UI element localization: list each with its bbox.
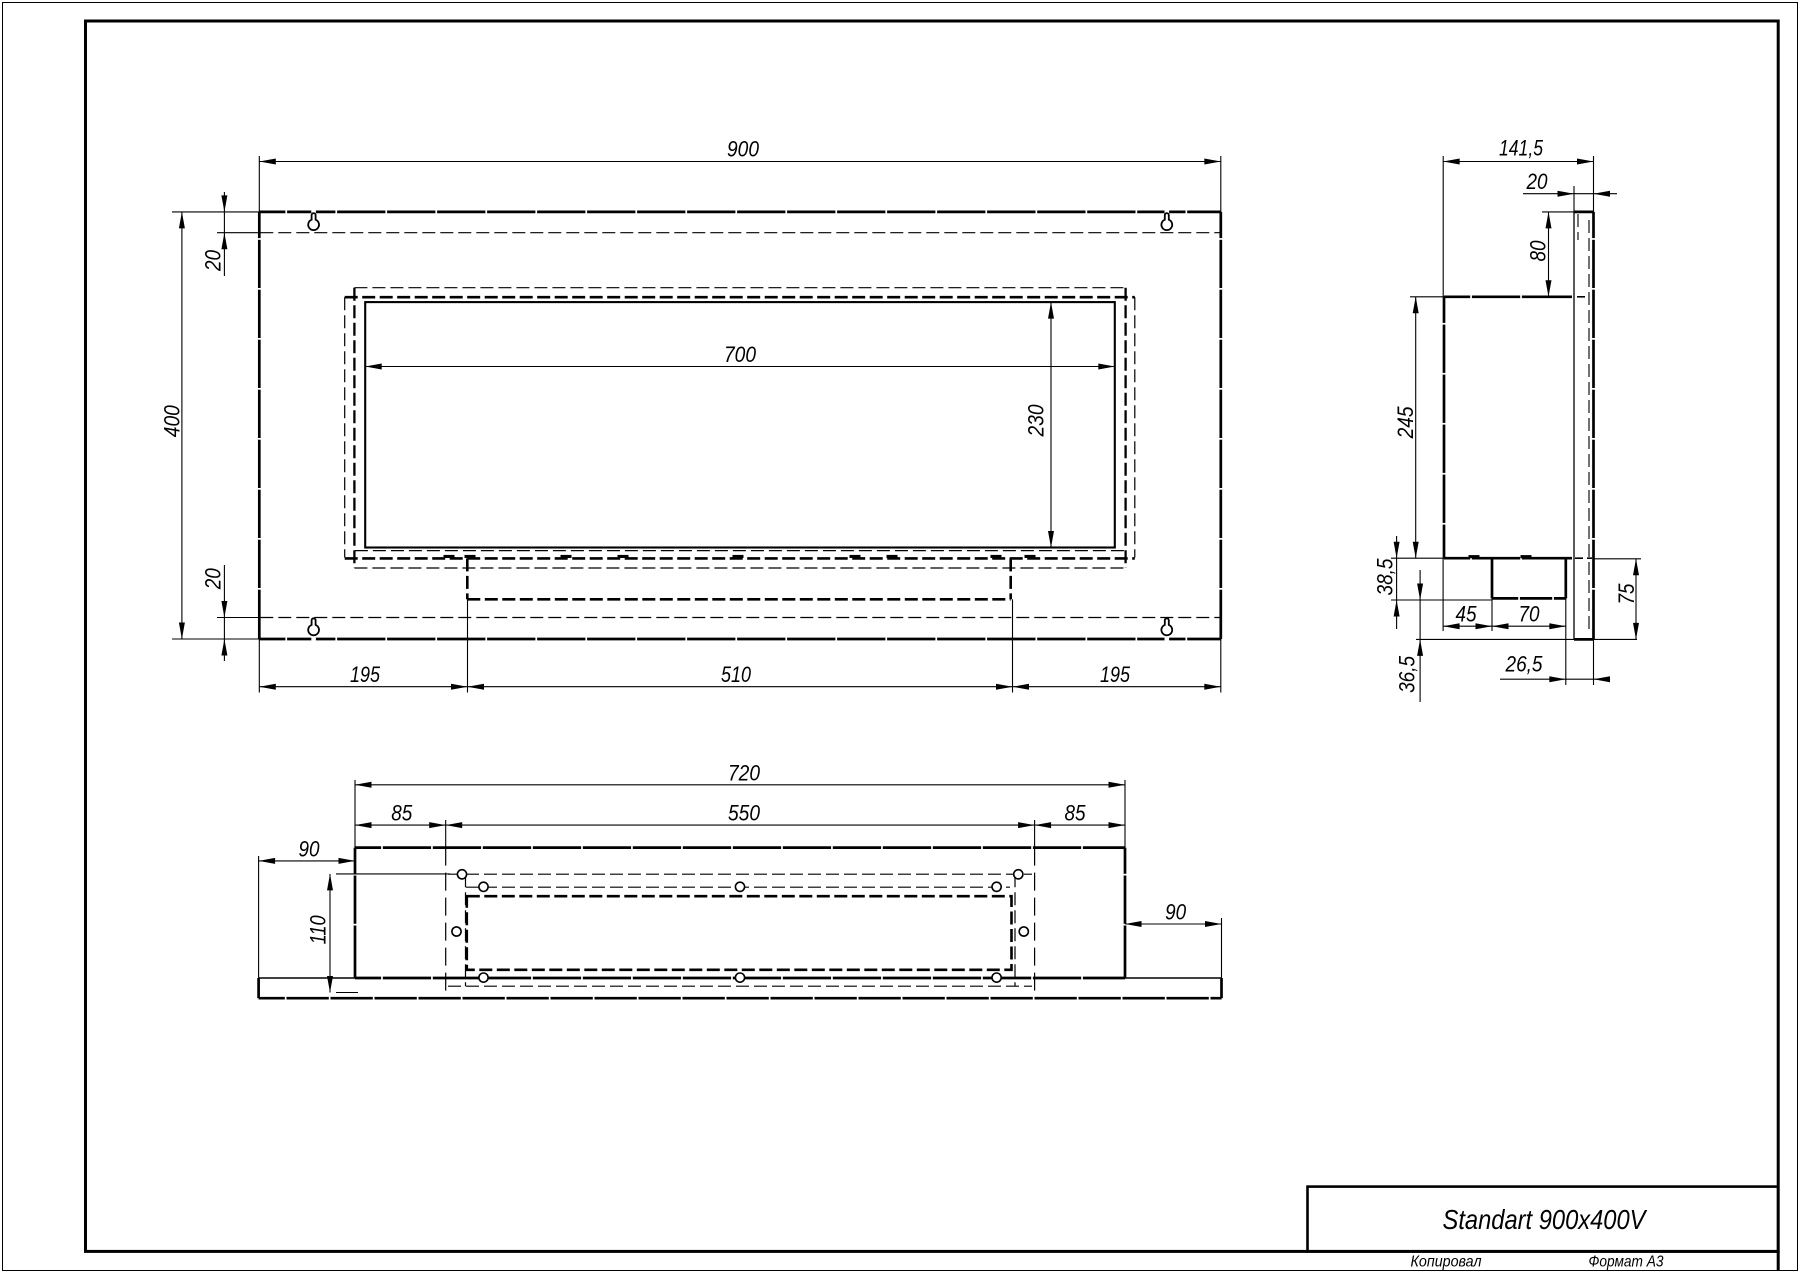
svg-text:Копировал: Копировал [1411,1254,1482,1271]
svg-text:110: 110 [306,915,331,944]
svg-text:80: 80 [1526,240,1551,261]
svg-text:38,5: 38,5 [1373,558,1398,595]
svg-text:90: 90 [1165,900,1186,925]
svg-text:20: 20 [1526,169,1548,194]
svg-text:20: 20 [201,568,226,590]
svg-text:720: 720 [728,760,760,785]
svg-text:85: 85 [1065,801,1086,826]
svg-text:900: 900 [727,137,759,162]
svg-text:36,5: 36,5 [1395,655,1420,692]
svg-text:Формат А3: Формат А3 [1589,1254,1664,1271]
svg-text:195: 195 [1100,662,1130,687]
svg-text:75: 75 [1614,583,1639,604]
svg-text:45: 45 [1456,602,1477,627]
svg-text:70: 70 [1519,602,1540,627]
svg-text:Standart 900x400V: Standart 900x400V [1443,1204,1648,1235]
svg-text:90: 90 [299,836,320,861]
svg-text:400: 400 [160,405,185,437]
svg-text:245: 245 [1393,406,1418,439]
svg-text:141,5: 141,5 [1499,136,1543,161]
svg-text:550: 550 [728,801,760,826]
svg-text:700: 700 [724,342,756,367]
svg-text:195: 195 [350,662,380,687]
svg-text:510: 510 [721,662,751,687]
svg-text:20: 20 [201,250,226,272]
svg-text:85: 85 [391,801,412,826]
svg-text:230: 230 [1024,404,1049,437]
svg-text:26,5: 26,5 [1505,652,1543,677]
